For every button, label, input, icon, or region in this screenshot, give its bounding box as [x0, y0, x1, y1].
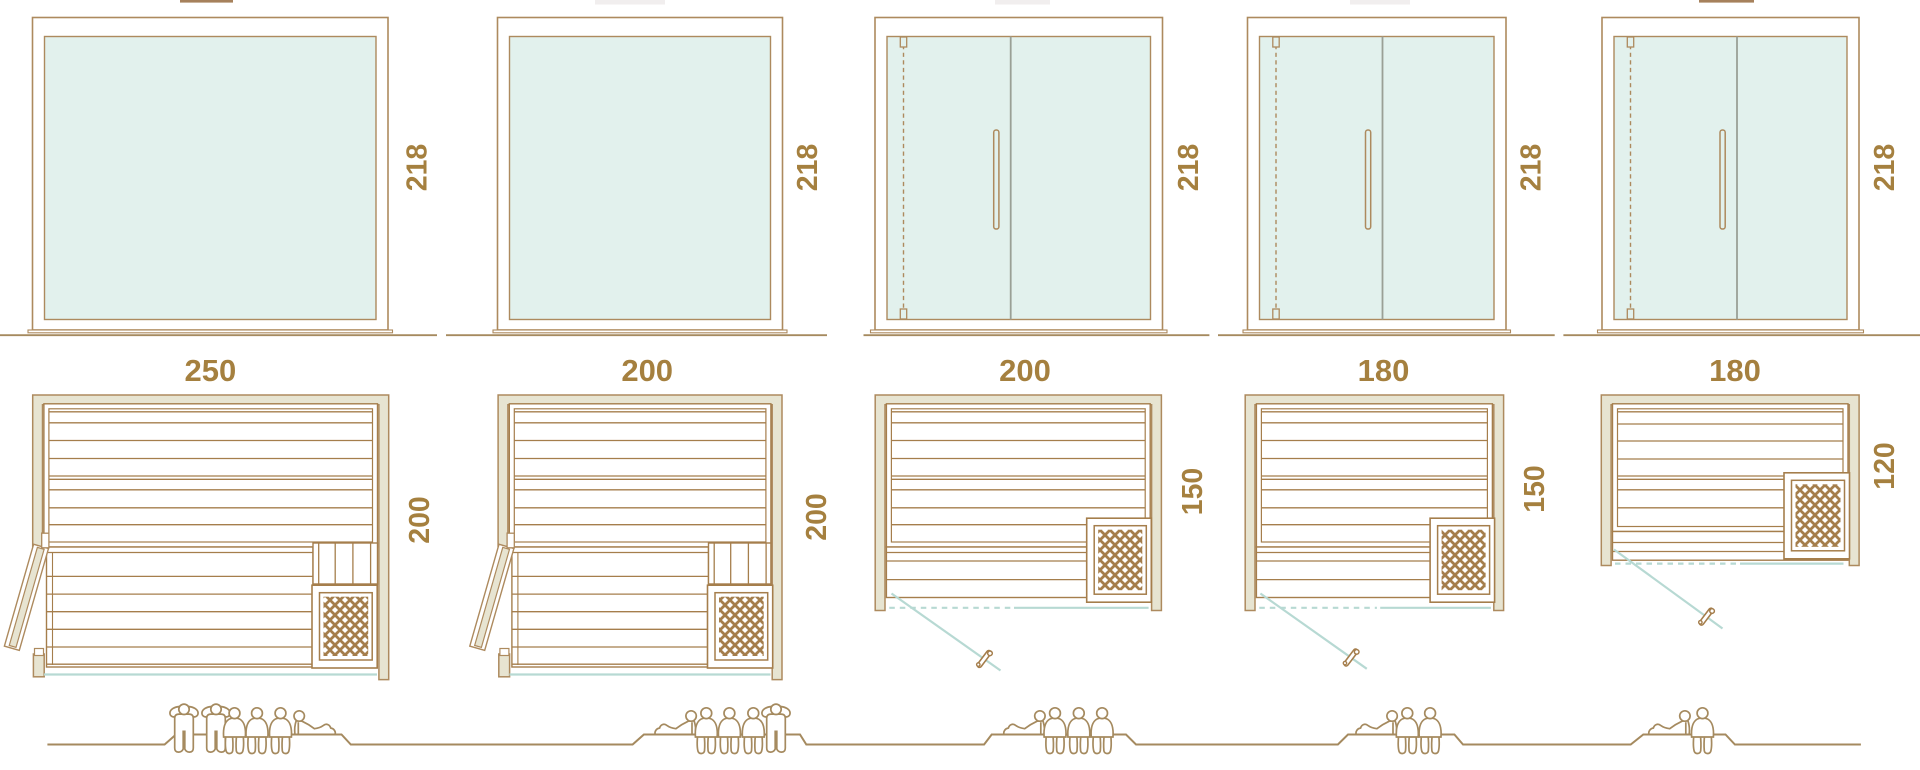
svg-text:150: 150	[1177, 468, 1209, 516]
svg-text:218: 218	[1173, 144, 1205, 192]
svg-text:200: 200	[404, 496, 436, 544]
svg-text:150: 150	[1519, 465, 1551, 513]
svg-text:218: 218	[402, 144, 434, 192]
svg-text:200: 200	[999, 353, 1051, 388]
svg-text:200: 200	[621, 353, 673, 388]
svg-text:218: 218	[792, 144, 824, 192]
svg-text:218: 218	[1869, 144, 1901, 192]
svg-text:180: 180	[1358, 353, 1410, 388]
svg-text:218: 218	[1516, 144, 1548, 192]
svg-text:200: 200	[801, 493, 833, 541]
svg-text:250: 250	[185, 353, 237, 388]
svg-text:120: 120	[1869, 442, 1901, 490]
svg-text:180: 180	[1709, 353, 1761, 388]
